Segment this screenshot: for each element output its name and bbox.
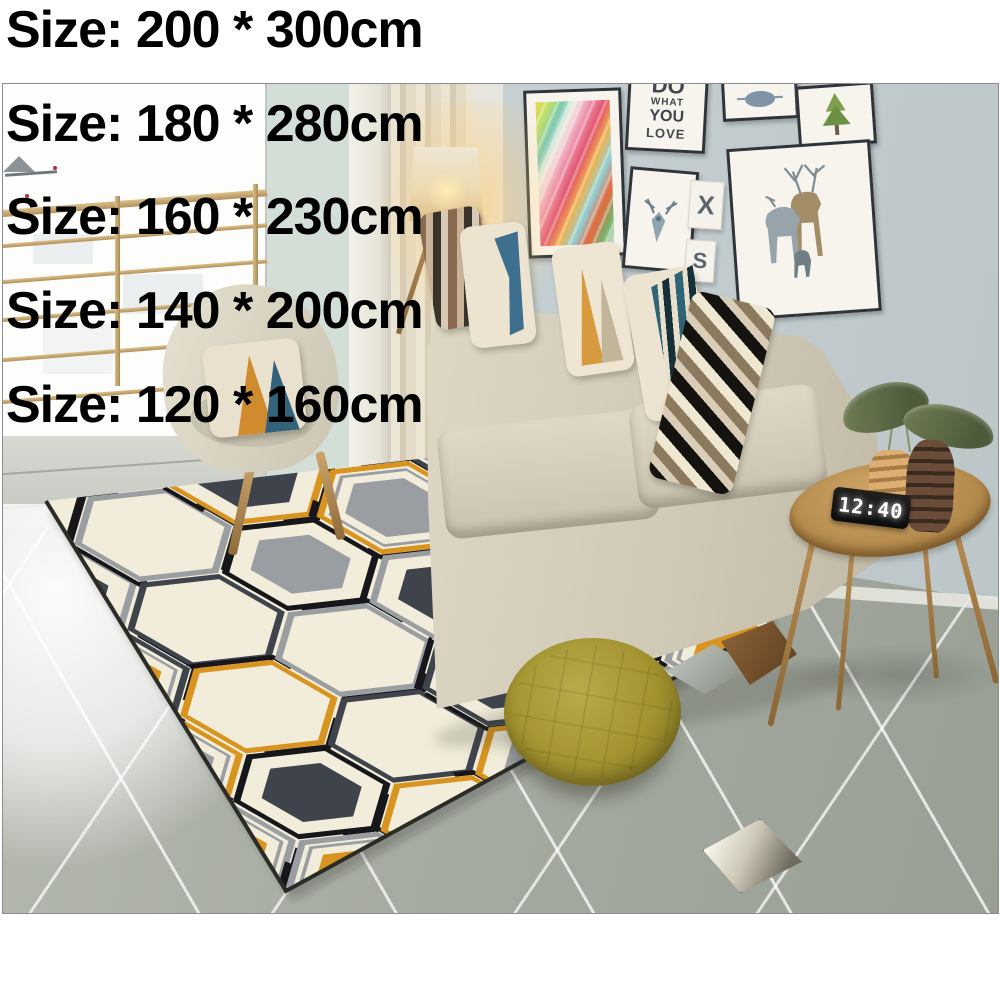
size-label-180x280: Size: 180 * 280cm [6, 98, 423, 150]
size-label-120x160: Size: 120 * 160cm [6, 379, 423, 431]
pouf-ottoman [504, 638, 681, 786]
size-label-160x230: Size: 160 * 230cm [6, 191, 423, 243]
size-label-140x200: Size: 140 * 200cm [6, 285, 423, 337]
size-label-200x300: Size: 200 * 300cm [6, 4, 423, 56]
dark-spiral-vase [904, 439, 957, 533]
table-shadow [791, 644, 999, 706]
sofa-seat-cushion [436, 408, 661, 540]
blue-motif-pillow [459, 221, 537, 349]
